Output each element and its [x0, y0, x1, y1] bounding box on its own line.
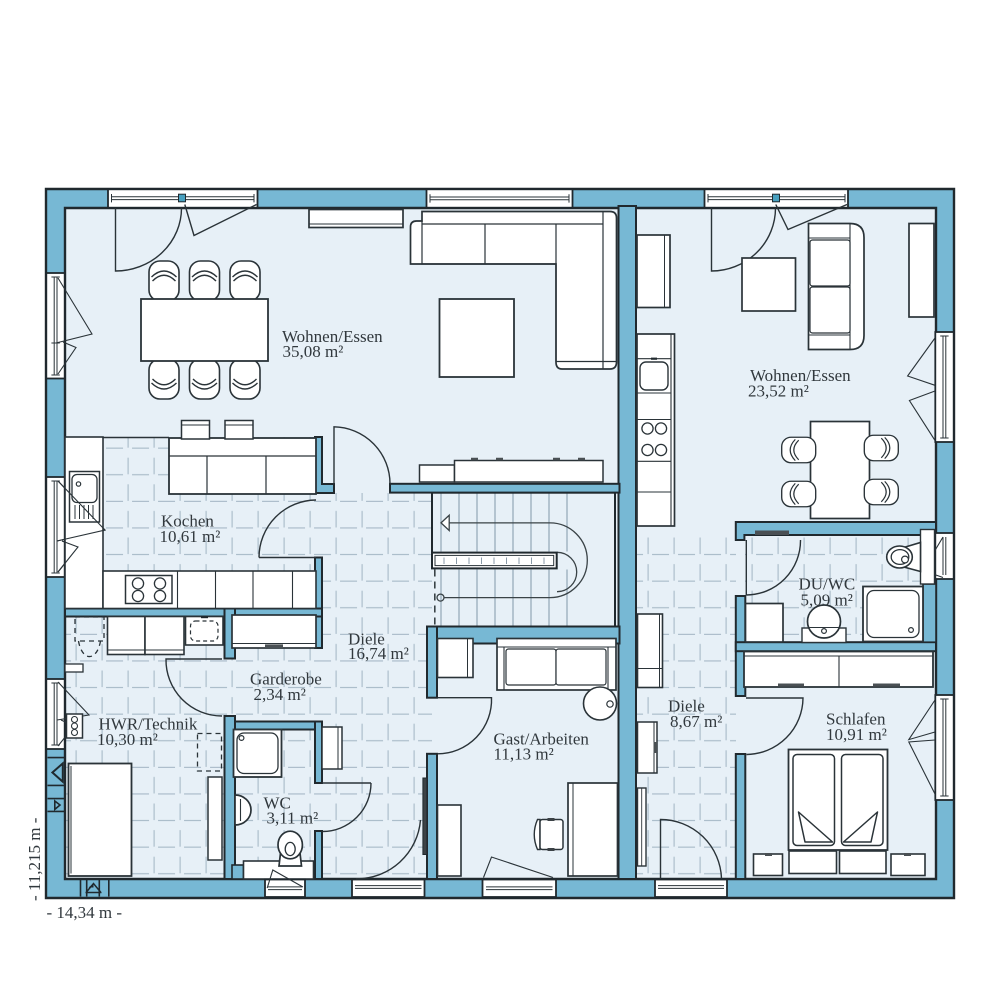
svg-text:10,91 m²: 10,91 m²: [826, 725, 887, 744]
svg-text:3,11 m²: 3,11 m²: [267, 809, 319, 828]
svg-text:16,74 m²: 16,74 m²: [348, 644, 409, 663]
svg-text:11,13 m²: 11,13 m²: [494, 745, 554, 764]
svg-text:10,30 m²: 10,30 m²: [97, 730, 158, 749]
svg-text:- 14,34 m -: - 14,34 m -: [47, 903, 123, 922]
svg-text:8,67 m²: 8,67 m²: [670, 712, 722, 731]
svg-text:5,09 m²: 5,09 m²: [801, 591, 853, 610]
svg-text:2,34 m²: 2,34 m²: [254, 685, 306, 704]
svg-text:35,08 m²: 35,08 m²: [283, 342, 344, 361]
svg-text:23,52 m²: 23,52 m²: [748, 382, 809, 401]
svg-text:10,61 m²: 10,61 m²: [160, 527, 221, 546]
svg-text:- 11,215 m -: - 11,215 m -: [25, 817, 44, 901]
